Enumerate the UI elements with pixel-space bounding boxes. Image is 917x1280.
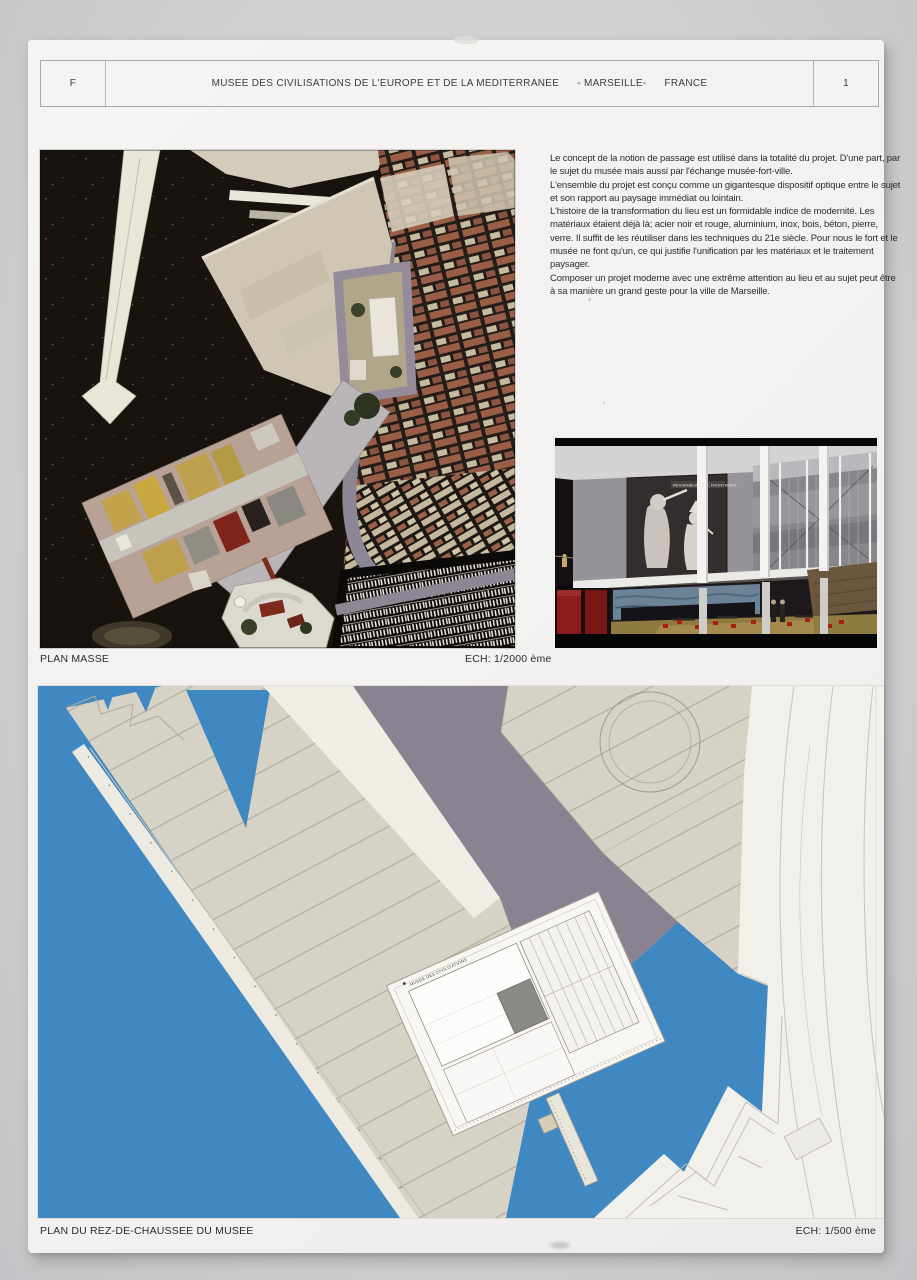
concept-paragraph-3: L'histoire de la transformation du lieu … [550,205,902,271]
concept-text: Le concept de la notion de passage est u… [550,152,902,298]
presentation-board: F MUSEE DES CIVILISATIONS DE L'EUROPE ET… [28,40,884,1253]
ground-floor-scale: ECH: 1/500 ème [796,1225,876,1237]
board-top-notch [453,36,479,44]
ground-floor-site-plan: MUSEE DES CIVILISATIONS [38,686,884,1218]
left-gallery-edge [555,478,573,588]
photo-smudge [550,1242,570,1249]
concept-paragraph-4: Composer un projet moderne avec une extr… [550,272,902,299]
country-code-cell: F [41,61,106,106]
interior-perspective-render: RESSEMBLANCES, FRONTIERES [555,438,877,648]
title-block: F MUSEE DES CIVILISATIONS DE L'EUROPE ET… [40,60,879,107]
photo-mural: RESSEMBLANCES, FRONTIERES [627,474,737,581]
dust-speck [603,402,605,404]
page-number: 1 [843,78,849,89]
board-title-main: MUSEE DES CIVILISATIONS DE L'EUROPE ET D… [212,78,560,89]
board-title-city: - MARSEILLE- [577,78,646,89]
glass-curtain-wall [753,452,877,578]
red-wall-panels [555,588,611,636]
dust-speck [588,298,591,301]
plan-masse-label: PLAN MASSE [40,653,109,665]
fort-ramparts [338,266,412,400]
aerial-photo-plan-masse [40,150,515,648]
page-number-cell: 1 [813,61,878,106]
concept-paragraph-1: Le concept de la notion de passage est u… [550,152,902,179]
board-title-country: FRANCE [664,78,707,89]
plan-masse-scale: ECH: 1/2000 ème [465,653,551,665]
ground-floor-label: PLAN DU REZ-DE-CHAUSSEE DU MUSEE [40,1225,254,1237]
board-title: MUSEE DES CIVILISATIONS DE L'EUROPE ET D… [106,61,813,106]
photo-backdrop: F MUSEE DES CIVILISATIONS DE L'EUROPE ET… [0,0,917,1280]
country-code: F [70,78,76,89]
concept-paragraph-2: L'ensemble du projet est conçu comme un … [550,179,902,206]
